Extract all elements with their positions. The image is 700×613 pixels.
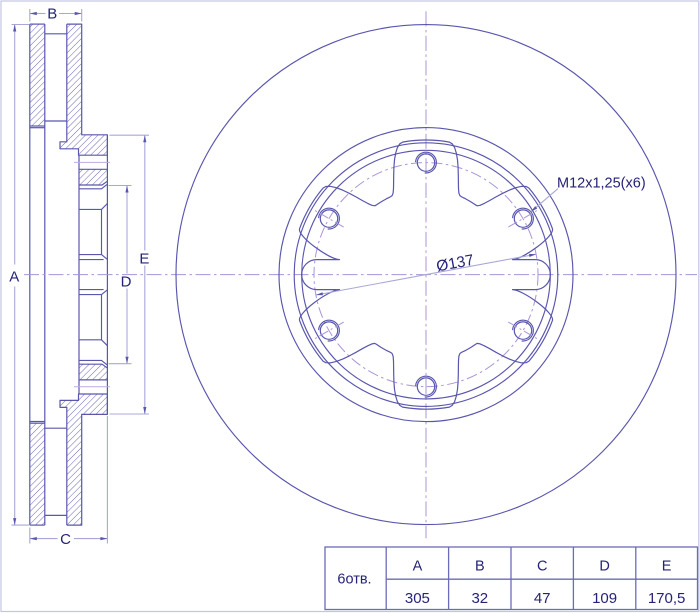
svg-text:47: 47 xyxy=(534,590,551,607)
svg-text:109: 109 xyxy=(592,590,617,607)
svg-text:170,5: 170,5 xyxy=(648,590,686,607)
svg-text:305: 305 xyxy=(405,590,430,607)
svg-text:B: B xyxy=(47,5,57,22)
svg-text:C: C xyxy=(60,531,71,548)
svg-text:A: A xyxy=(413,559,423,575)
svg-text:32: 32 xyxy=(471,590,488,607)
svg-text:D: D xyxy=(121,273,132,290)
svg-text:B: B xyxy=(475,559,485,575)
svg-text:A: A xyxy=(9,268,19,285)
svg-text:M12x1,25(x6): M12x1,25(x6) xyxy=(557,175,646,191)
svg-text:E: E xyxy=(139,250,149,267)
svg-text:6отв.: 6отв. xyxy=(337,572,371,588)
svg-text:C: C xyxy=(537,559,547,575)
svg-text:D: D xyxy=(599,559,609,575)
svg-text:E: E xyxy=(662,559,672,575)
